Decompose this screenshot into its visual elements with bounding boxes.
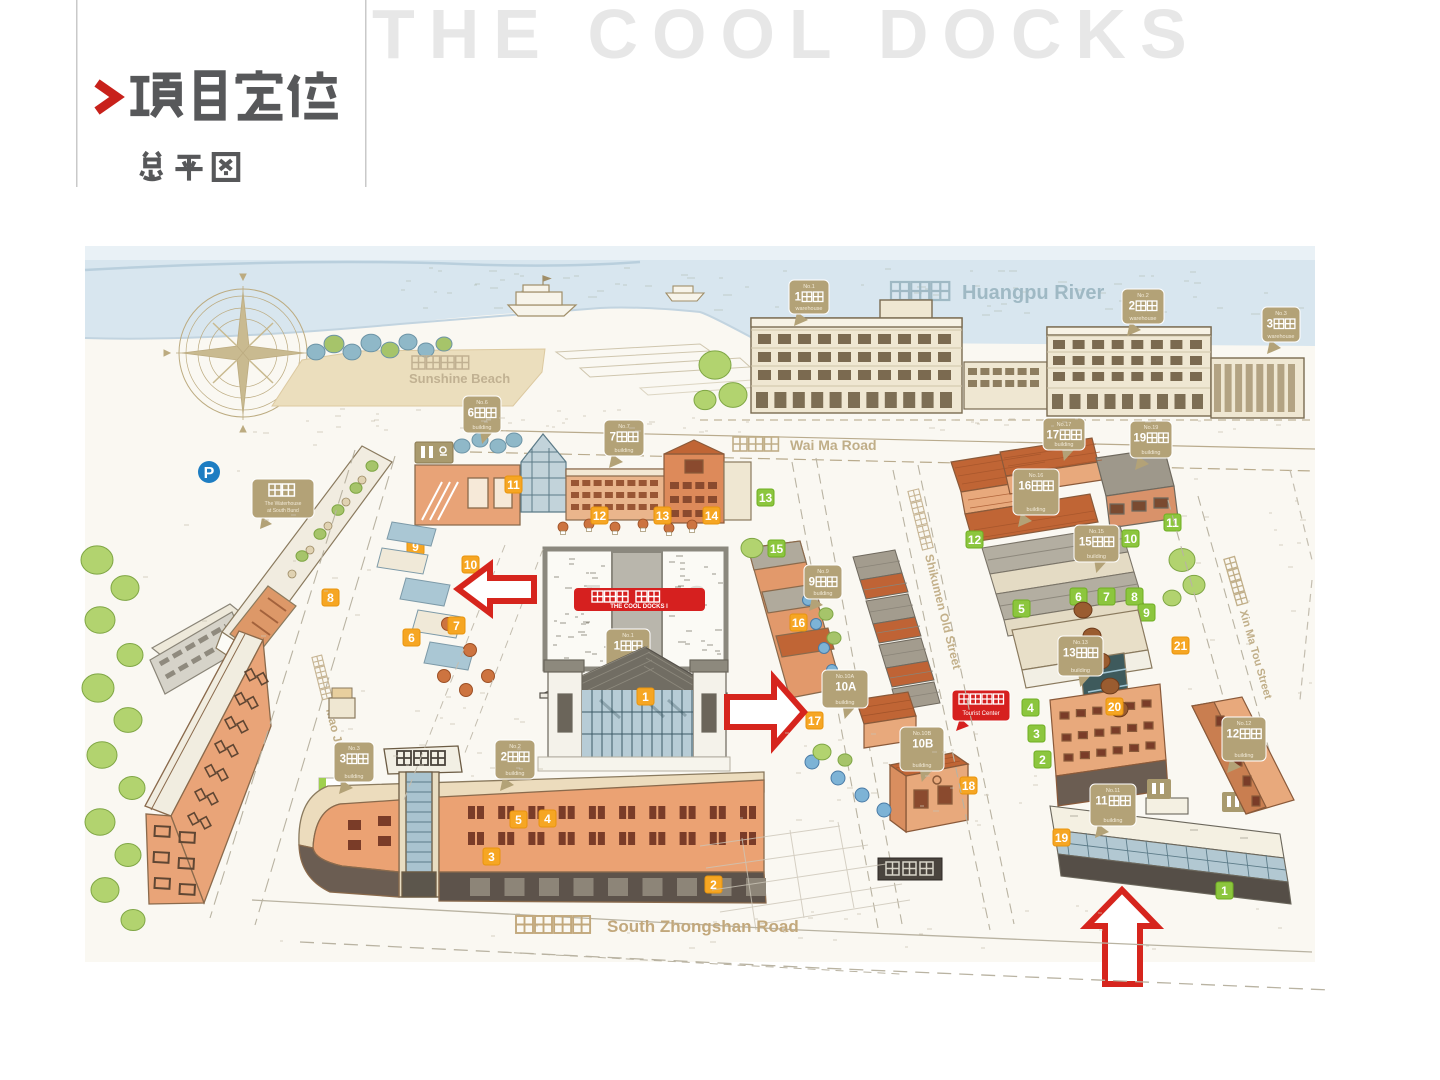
svg-text:building: building	[1087, 554, 1106, 560]
svg-text:3: 3	[488, 850, 495, 864]
svg-text:8: 8	[327, 591, 334, 605]
svg-text:1: 1	[642, 690, 649, 704]
svg-text:No.10B: No.10B	[913, 731, 932, 737]
svg-text:building: building	[814, 591, 833, 597]
svg-text:No.11: No.11	[1106, 788, 1120, 794]
svg-text:16: 16	[1018, 481, 1031, 493]
svg-text:P: P	[204, 465, 215, 482]
svg-text:17: 17	[808, 714, 822, 728]
svg-text:No.3: No.3	[348, 746, 360, 752]
svg-text:No.12: No.12	[1237, 721, 1252, 727]
svg-text:Sunshine Beach: Sunshine Beach	[409, 371, 510, 386]
svg-text:8: 8	[1131, 590, 1138, 604]
svg-text:The Waterhouse: The Waterhouse	[265, 501, 302, 507]
svg-text:THE COOL DOCKS: THE COOL DOCKS	[372, 0, 1201, 73]
svg-text:10: 10	[464, 558, 478, 572]
svg-text:No.10A: No.10A	[836, 674, 855, 680]
svg-text:No.3: No.3	[1275, 311, 1287, 317]
svg-text:building: building	[913, 763, 932, 769]
svg-text:building: building	[1104, 818, 1123, 824]
svg-text:South Zhongshan Road: South Zhongshan Road	[607, 917, 799, 936]
svg-text:No.1: No.1	[803, 284, 815, 290]
svg-text:building: building	[836, 700, 855, 706]
svg-text:Tourist Center: Tourist Center	[962, 711, 999, 717]
svg-text:building: building	[473, 425, 492, 431]
svg-text:13: 13	[656, 509, 670, 523]
svg-text:15: 15	[770, 542, 784, 556]
svg-text:19: 19	[1133, 433, 1146, 445]
svg-text:13: 13	[759, 491, 773, 505]
svg-text:7: 7	[1103, 590, 1110, 604]
svg-text:2: 2	[1039, 753, 1046, 767]
svg-text:13: 13	[1063, 648, 1076, 660]
svg-text:10A: 10A	[835, 682, 856, 694]
svg-text:No.15: No.15	[1089, 529, 1104, 535]
svg-text:No.17: No.17	[1057, 422, 1072, 428]
svg-text:3: 3	[340, 754, 346, 766]
svg-text:building: building	[1235, 753, 1254, 759]
svg-text:warehouse: warehouse	[795, 306, 823, 312]
svg-text:No.1: No.1	[622, 633, 634, 639]
svg-text:11: 11	[507, 478, 520, 492]
svg-text:No.9: No.9	[817, 569, 829, 575]
svg-text:12: 12	[1226, 729, 1239, 741]
svg-text:21: 21	[1174, 639, 1188, 653]
svg-text:building: building	[345, 774, 364, 780]
svg-text:1: 1	[795, 292, 802, 304]
svg-text:20: 20	[1108, 700, 1122, 714]
svg-text:Wai Ma Road: Wai Ma Road	[790, 437, 877, 453]
svg-text:4: 4	[1027, 701, 1034, 715]
svg-text:18: 18	[962, 779, 976, 793]
svg-text:at South Bund: at South Bund	[267, 508, 299, 514]
svg-text:Huangpu River: Huangpu River	[962, 282, 1104, 304]
svg-text:3: 3	[1267, 319, 1273, 331]
svg-text:10: 10	[1124, 532, 1138, 546]
svg-text:7: 7	[610, 432, 616, 444]
svg-text:warehouse: warehouse	[1267, 334, 1295, 340]
svg-text:building: building	[1027, 507, 1046, 513]
svg-text:7: 7	[453, 619, 460, 633]
svg-text:12: 12	[968, 533, 982, 547]
svg-text:2: 2	[1129, 301, 1135, 313]
svg-text:No.19: No.19	[1144, 425, 1159, 431]
svg-text:building: building	[1055, 442, 1074, 448]
svg-text:16: 16	[792, 616, 806, 630]
svg-text:10B: 10B	[912, 739, 933, 751]
svg-text:5: 5	[515, 813, 522, 827]
svg-text:6: 6	[408, 631, 415, 645]
svg-text:1: 1	[614, 641, 621, 653]
svg-text:5: 5	[1018, 602, 1025, 616]
svg-text:building: building	[615, 448, 634, 454]
svg-text:building: building	[1071, 668, 1090, 674]
svg-text:warehouse: warehouse	[1129, 316, 1157, 322]
svg-text:9: 9	[809, 577, 815, 589]
svg-text:14: 14	[705, 509, 719, 523]
svg-text:19: 19	[1055, 831, 1069, 845]
svg-text:9: 9	[1143, 606, 1150, 620]
svg-text:No.13: No.13	[1073, 640, 1088, 646]
svg-text:No.2: No.2	[1137, 293, 1149, 299]
svg-text:THE COOL DOCKS I: THE COOL DOCKS I	[610, 604, 668, 610]
svg-text:4: 4	[544, 812, 551, 826]
svg-text:building: building	[1142, 450, 1161, 456]
svg-text:No.7: No.7	[618, 424, 630, 430]
svg-text:3: 3	[1033, 727, 1040, 741]
svg-text:No.16: No.16	[1029, 473, 1044, 479]
svg-text:15: 15	[1079, 537, 1092, 549]
svg-text:6: 6	[468, 408, 474, 420]
svg-text:11: 11	[1095, 796, 1108, 808]
svg-text:1: 1	[1221, 884, 1228, 898]
svg-text:2: 2	[501, 752, 507, 764]
svg-text:17: 17	[1046, 430, 1059, 442]
svg-text:No.6: No.6	[476, 400, 488, 406]
svg-text:12: 12	[593, 509, 607, 523]
svg-text:building: building	[506, 771, 525, 777]
